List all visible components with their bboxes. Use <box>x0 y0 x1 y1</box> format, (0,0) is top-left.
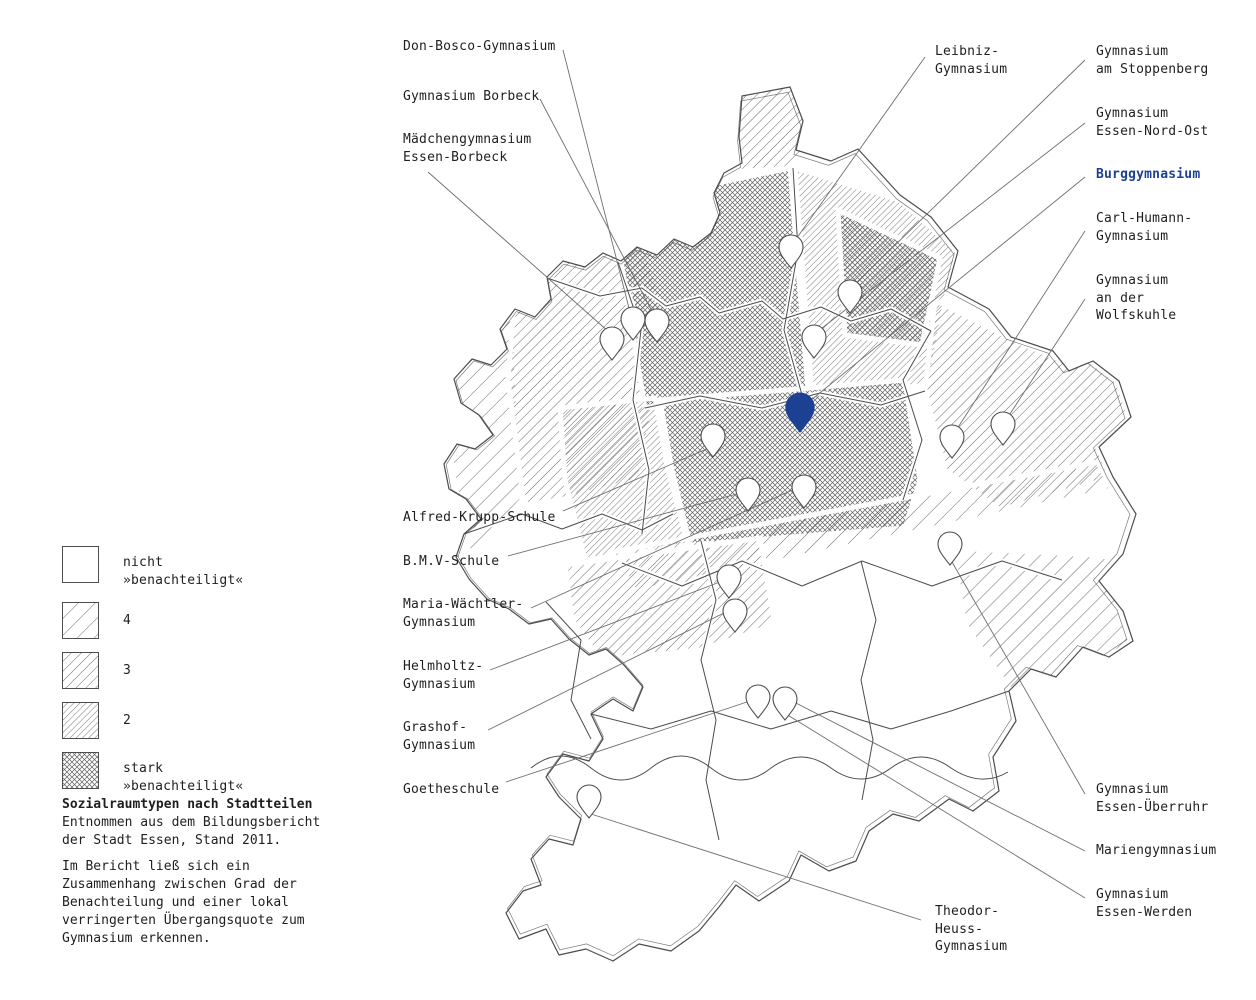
source-note: Sozialraumtypen nach Stadtteilen Entnomm… <box>62 796 362 947</box>
legend-2-swatch-icon <box>62 702 99 739</box>
pin-theodor-heuss-marker-icon[interactable] <box>577 785 601 818</box>
legend-3: 3 <box>62 652 362 689</box>
label-carl-humann: Carl-Humann- Gymnasium <box>1096 210 1192 245</box>
legend-2-label: 2 <box>123 702 131 730</box>
legend-3-label: 3 <box>123 652 131 680</box>
legend-stark: stark »benachteiligt« <box>62 752 362 795</box>
legend-4-label: 4 <box>123 602 131 630</box>
pin-werden-marker-icon[interactable] <box>773 687 797 720</box>
label-goetheschule: Goetheschule <box>403 781 499 799</box>
pin-goetheschule-marker-icon[interactable] <box>746 685 770 718</box>
label-leibniz: Leibniz- Gymnasium <box>935 43 1007 78</box>
label-don-bosco: Don-Bosco-Gymnasium <box>403 38 556 56</box>
label-alfred-krupp: Alfred-Krupp-Schule <box>403 509 556 527</box>
label-bmv: B.M.V-Schule <box>403 553 499 571</box>
label-maria-waechtler: Maria-Wächtler- Gymnasium <box>403 596 523 631</box>
label-nord-ost: Gymnasium Essen-Nord-Ost <box>1096 105 1208 140</box>
label-ueberruhr: Gymnasium Essen-Überruhr <box>1096 781 1208 816</box>
leader-marien <box>790 700 1085 851</box>
legend-stark-label: stark »benachteiligt« <box>123 752 243 795</box>
legend: nicht »benachteiligt«432stark »benachtei… <box>62 546 362 808</box>
note-title: Sozialraumtypen nach Stadtteilen <box>62 796 362 814</box>
legend-none-label: nicht »benachteiligt« <box>123 546 243 589</box>
label-theodor-heuss: Theodor- Heuss- Gymnasium <box>935 903 1007 956</box>
legend-3-swatch-icon <box>62 652 99 689</box>
label-maedchengym: Mädchengymnasium Essen-Borbeck <box>403 131 531 166</box>
label-burg: Burggymnasium <box>1096 166 1200 184</box>
label-werden: Gymnasium Essen-Werden <box>1096 886 1192 921</box>
district-karnap <box>718 82 812 172</box>
label-grashof: Grashof- Gymnasium <box>403 719 475 754</box>
note-paragraph: Im Bericht ließ sich ein Zusammenhang zw… <box>62 858 362 947</box>
leader-maedchengym <box>428 172 609 332</box>
leader-stoppenberg <box>852 60 1085 287</box>
district-patches <box>442 82 1130 690</box>
label-helmholtz: Helmholtz- Gymnasium <box>403 658 483 693</box>
legend-4-swatch-icon <box>62 602 99 639</box>
label-wolfskuhle: Gymnasium an der Wolfskuhle <box>1096 272 1176 325</box>
label-stoppenberg: Gymnasium am Stoppenberg <box>1096 43 1208 78</box>
label-gym-borbeck: Gymnasium Borbeck <box>403 88 539 106</box>
legend-4: 4 <box>62 602 362 639</box>
legend-none-swatch-icon <box>62 546 99 583</box>
legend-none: nicht »benachteiligt« <box>62 546 362 589</box>
legend-stark-swatch-icon <box>62 752 99 789</box>
label-marien: Mariengymnasium <box>1096 842 1216 860</box>
legend-2: 2 <box>62 702 362 739</box>
note-source-lines: Entnommen aus dem Bildungsbericht der St… <box>62 814 362 850</box>
